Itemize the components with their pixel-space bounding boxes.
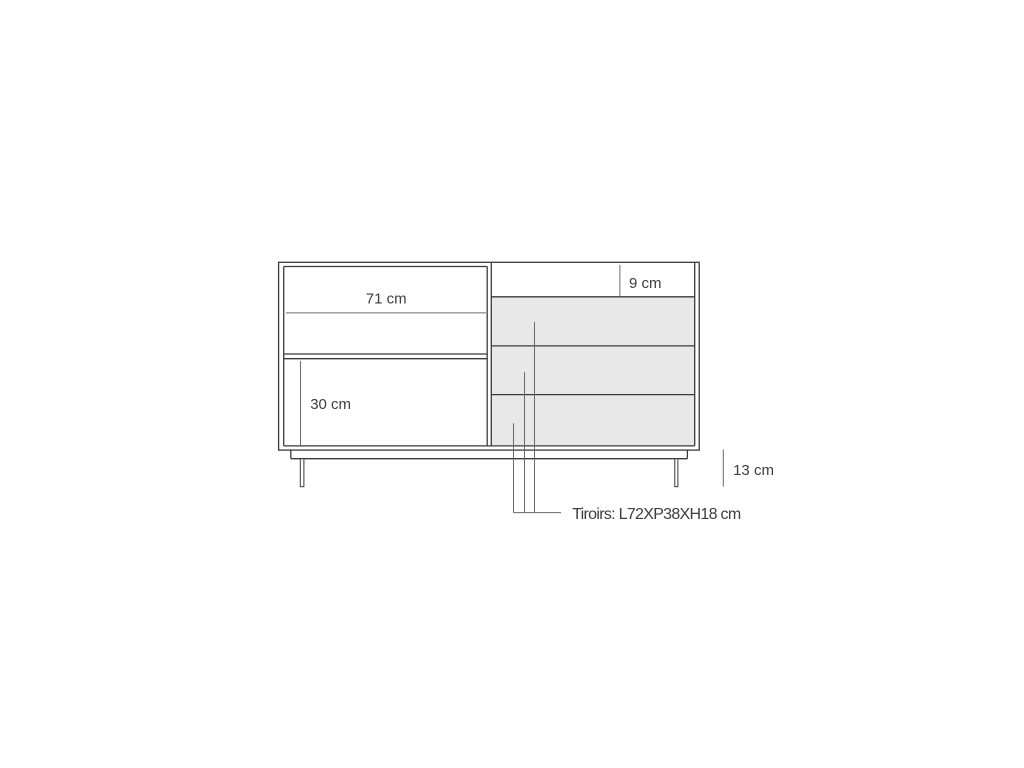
svg-text:13 cm: 13 cm <box>733 462 774 479</box>
svg-text:9 cm: 9 cm <box>629 275 662 292</box>
svg-text:30 cm: 30 cm <box>310 396 351 413</box>
svg-text:71 cm: 71 cm <box>366 291 407 308</box>
svg-text:Tiroirs: L72XP38XH18 cm: Tiroirs: L72XP38XH18 cm <box>572 506 741 523</box>
